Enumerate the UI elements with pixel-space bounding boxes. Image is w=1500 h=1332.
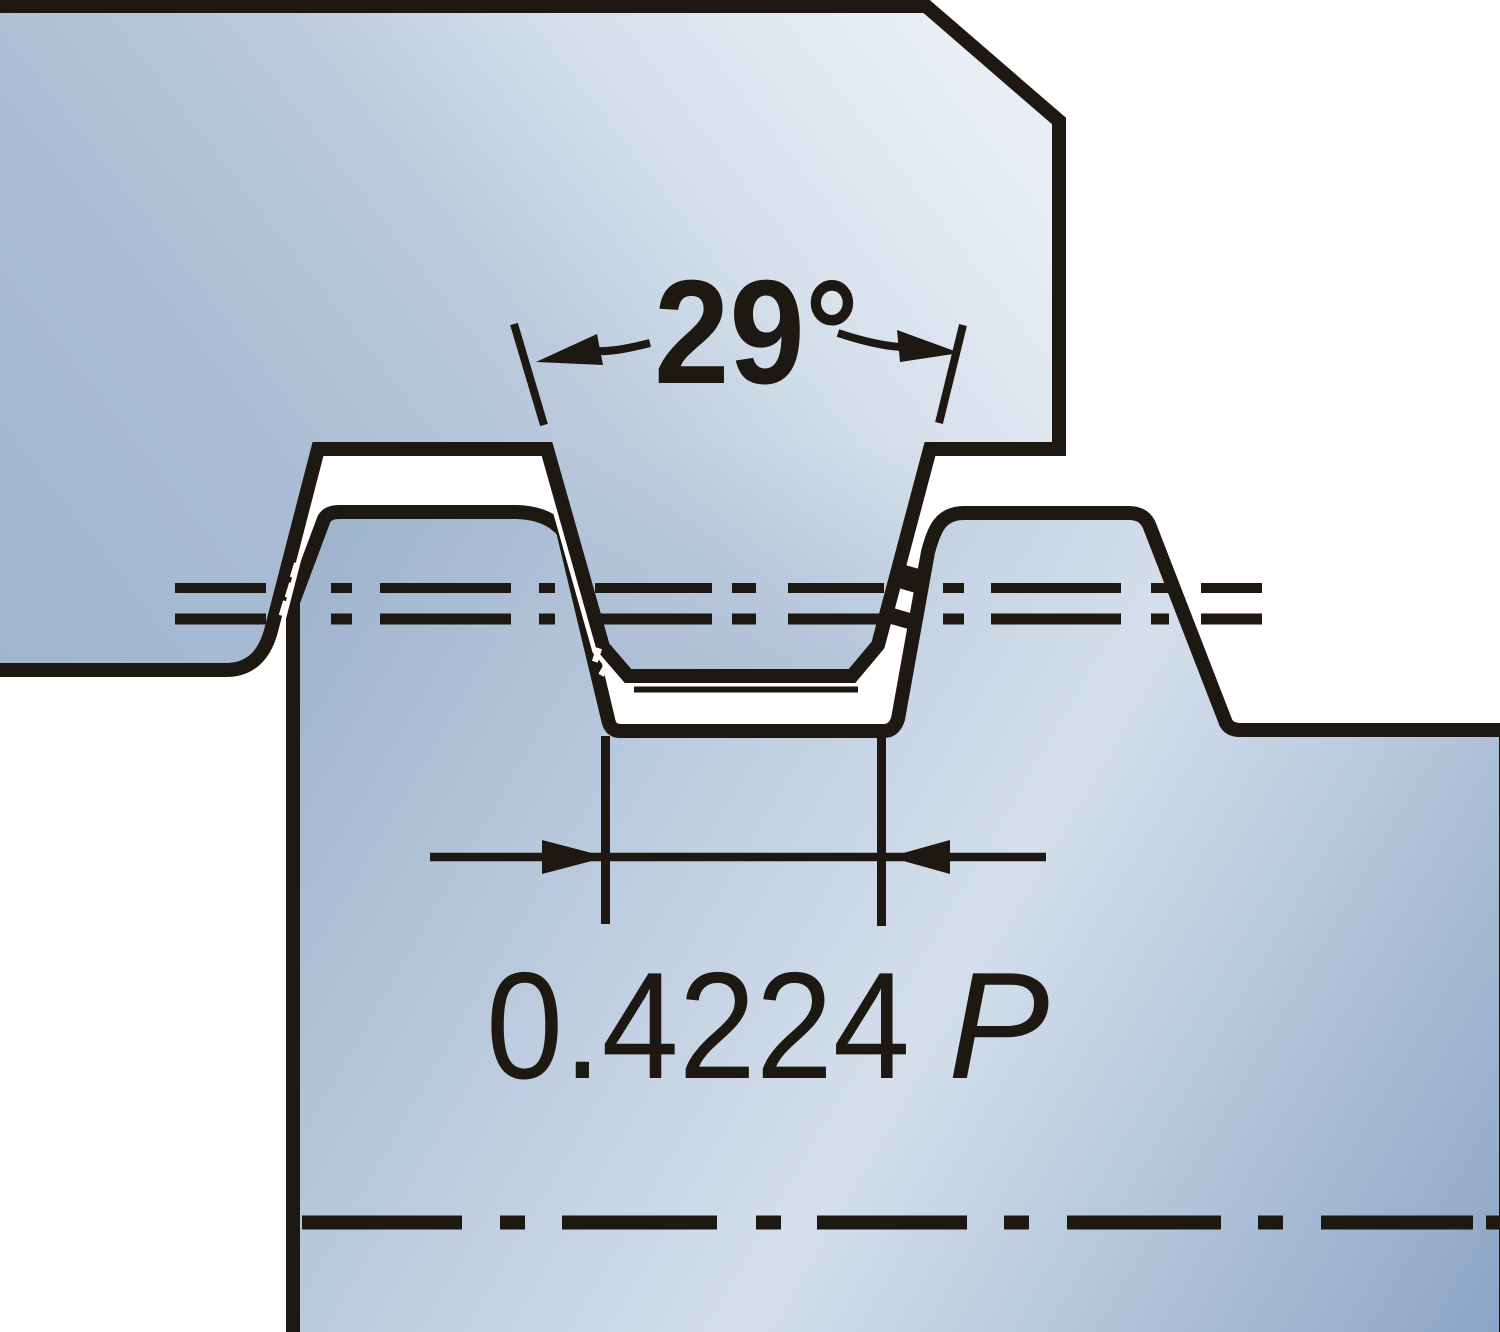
svg-text:0.4224: 0.4224 [486,941,910,1111]
svg-text:29°: 29° [654,250,859,415]
svg-text:P: P [948,941,1049,1111]
